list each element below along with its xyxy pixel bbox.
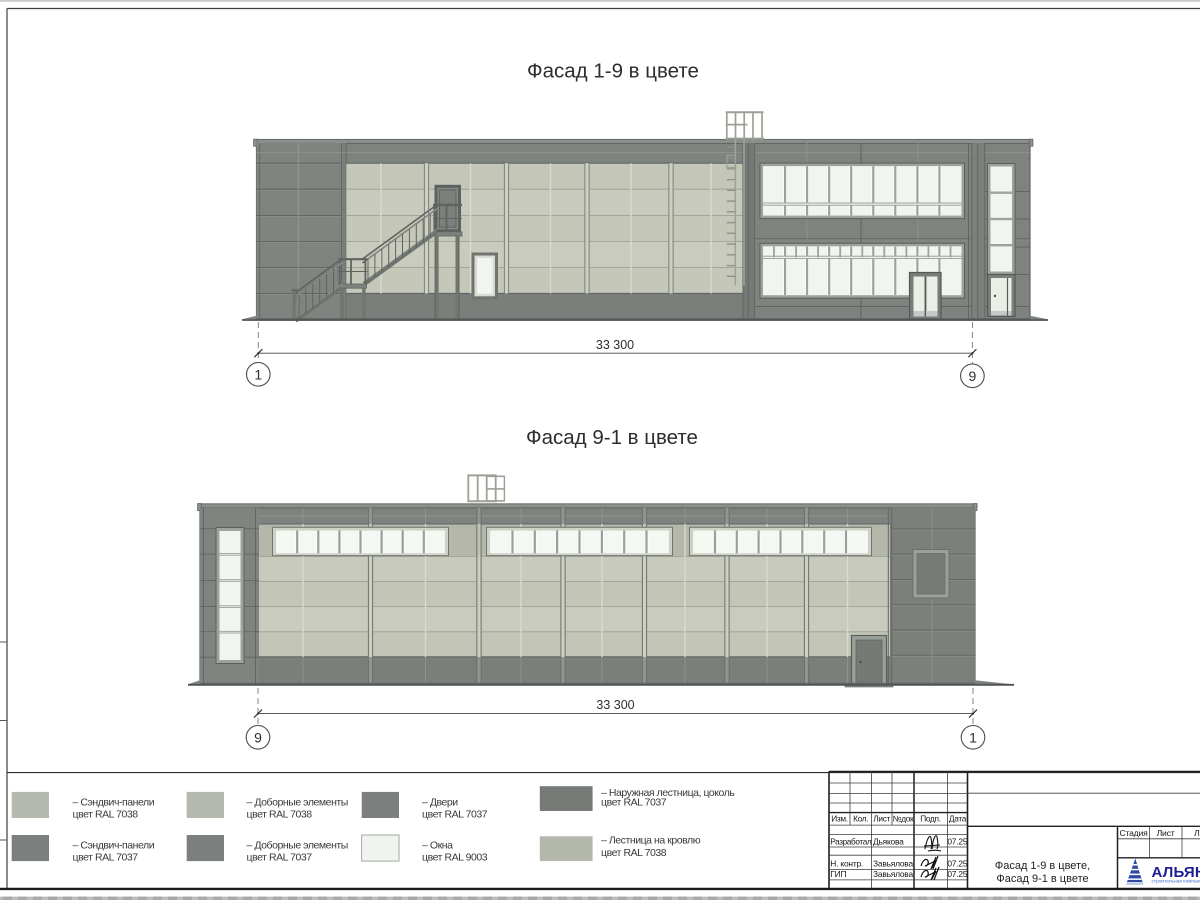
svg-text:– Лестница на кровлю: – Лестница на кровлю (601, 835, 701, 847)
svg-text:Разработал: Разработал (830, 837, 872, 846)
svg-text:Фасад 9-1 в цвете: Фасад 9-1 в цвете (996, 873, 1088, 885)
svg-text:цвет RAL 7037: цвет RAL 7037 (422, 809, 488, 821)
svg-text:Фасад 1-9 в цвете: Фасад 1-9 в цвете (527, 60, 699, 83)
svg-text:Фасад 1-9 в цвете,: Фасад 1-9 в цвете, (995, 860, 1090, 872)
svg-text:07.25: 07.25 (947, 858, 968, 868)
svg-text:№док: №док (893, 814, 914, 824)
svg-text:Дата: Дата (949, 814, 967, 824)
svg-text:Завьялова: Завьялова (873, 869, 913, 879)
svg-text:Лист: Лист (873, 814, 890, 824)
svg-text:ГИП: ГИП (830, 869, 846, 879)
svg-text:строительная компания: строительная компания (1152, 880, 1200, 885)
svg-text:1: 1 (254, 366, 262, 382)
svg-text:Лист: Лист (1194, 828, 1200, 838)
svg-text:Фасад 9-1 в цвете: Фасад 9-1 в цвете (526, 426, 698, 449)
svg-text:07.25: 07.25 (947, 836, 968, 846)
svg-text:цвет RAL 7037: цвет RAL 7037 (73, 852, 139, 864)
svg-text:АЛЬЯНС: АЛЬЯНС (1152, 864, 1200, 881)
svg-text:– Сэндвич-панели: – Сэндвич-панели (73, 839, 155, 851)
svg-text:Стадия: Стадия (1119, 828, 1148, 838)
svg-text:9: 9 (969, 368, 977, 384)
svg-text:– Окна: – Окна (422, 839, 453, 851)
svg-text:07.25: 07.25 (947, 869, 968, 879)
svg-text:Кол.: Кол. (853, 814, 868, 824)
svg-text:33 300: 33 300 (596, 698, 634, 712)
svg-text:цвет RAL 7038: цвет RAL 7038 (601, 847, 667, 859)
svg-text:Изм.: Изм. (831, 814, 848, 824)
svg-text:цвет RAL 7037: цвет RAL 7037 (601, 796, 667, 808)
svg-text:9: 9 (254, 729, 262, 745)
svg-text:– Доборные элементы: – Доборные элементы (247, 839, 348, 851)
svg-text:цвет RAL 7037: цвет RAL 7037 (247, 852, 313, 864)
svg-text:1: 1 (969, 729, 977, 745)
svg-text:Н. контр.: Н. контр. (830, 858, 863, 868)
svg-text:– Сэндвич-панели: – Сэндвич-панели (73, 796, 155, 808)
svg-text:Лист: Лист (1157, 828, 1175, 838)
svg-text:Дьякова: Дьякова (873, 836, 904, 846)
svg-text:Подп.: Подп. (920, 814, 941, 824)
svg-text:цвет RAL 7038: цвет RAL 7038 (247, 809, 313, 821)
svg-text:33 300: 33 300 (596, 338, 634, 352)
svg-text:цвет RAL 7038: цвет RAL 7038 (73, 809, 139, 821)
svg-text:цвет RAL 9003: цвет RAL 9003 (422, 852, 488, 864)
svg-text:Завьялова: Завьялова (873, 858, 913, 868)
svg-text:– Доборные элементы: – Доборные элементы (247, 796, 348, 808)
svg-text:– Двери: – Двери (422, 796, 458, 808)
